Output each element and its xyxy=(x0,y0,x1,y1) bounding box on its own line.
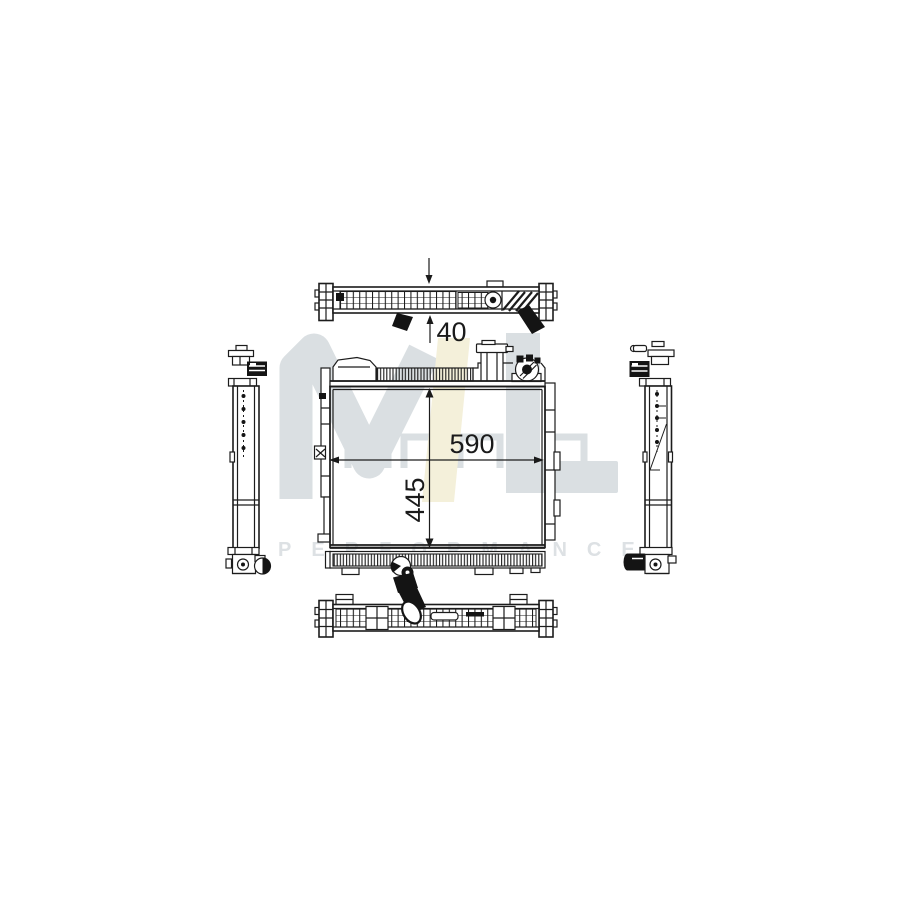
left-view-cap-flange xyxy=(229,351,254,357)
front-top-corrugation xyxy=(377,368,473,381)
radiator-left-side-view xyxy=(226,346,271,575)
dimension-height-label: 445 xyxy=(400,477,430,522)
front-core xyxy=(330,387,545,549)
radiator-right-side-view xyxy=(624,342,677,574)
filler-neck xyxy=(481,352,503,382)
front-left-bracket xyxy=(315,368,331,542)
dimension-depth-label: 40 xyxy=(437,317,467,347)
radiator-technical-drawing: PERFORMANCE xyxy=(0,0,900,900)
front-top-tank xyxy=(330,341,545,387)
bottom-view-mount-right xyxy=(493,607,515,630)
top-view-detail-grid xyxy=(458,293,488,309)
bottom-view-mount-left xyxy=(366,607,388,630)
top-view-bracket-tab xyxy=(487,281,503,287)
dimension-width-label: 590 xyxy=(449,429,494,459)
front-right-bracket xyxy=(545,383,560,540)
top-view-core-mesh xyxy=(340,292,456,310)
front-bottom-tank xyxy=(326,552,546,579)
drawing-layer: 40 590 445 xyxy=(0,0,900,900)
top-view-lower-fitting xyxy=(392,313,413,331)
dimension-height: 445 xyxy=(400,388,434,548)
right-view-nipple xyxy=(634,346,647,352)
left-view-cap-stem xyxy=(236,346,247,351)
filler-cap xyxy=(477,344,508,353)
radiator-bottom-view xyxy=(315,573,557,638)
right-view-cap-flange xyxy=(648,350,674,357)
dimension-width: 590 xyxy=(329,429,544,464)
right-view-cap-stem xyxy=(652,342,664,347)
front-bottom-corrugation xyxy=(333,554,542,566)
bottom-view-slot xyxy=(431,613,458,621)
